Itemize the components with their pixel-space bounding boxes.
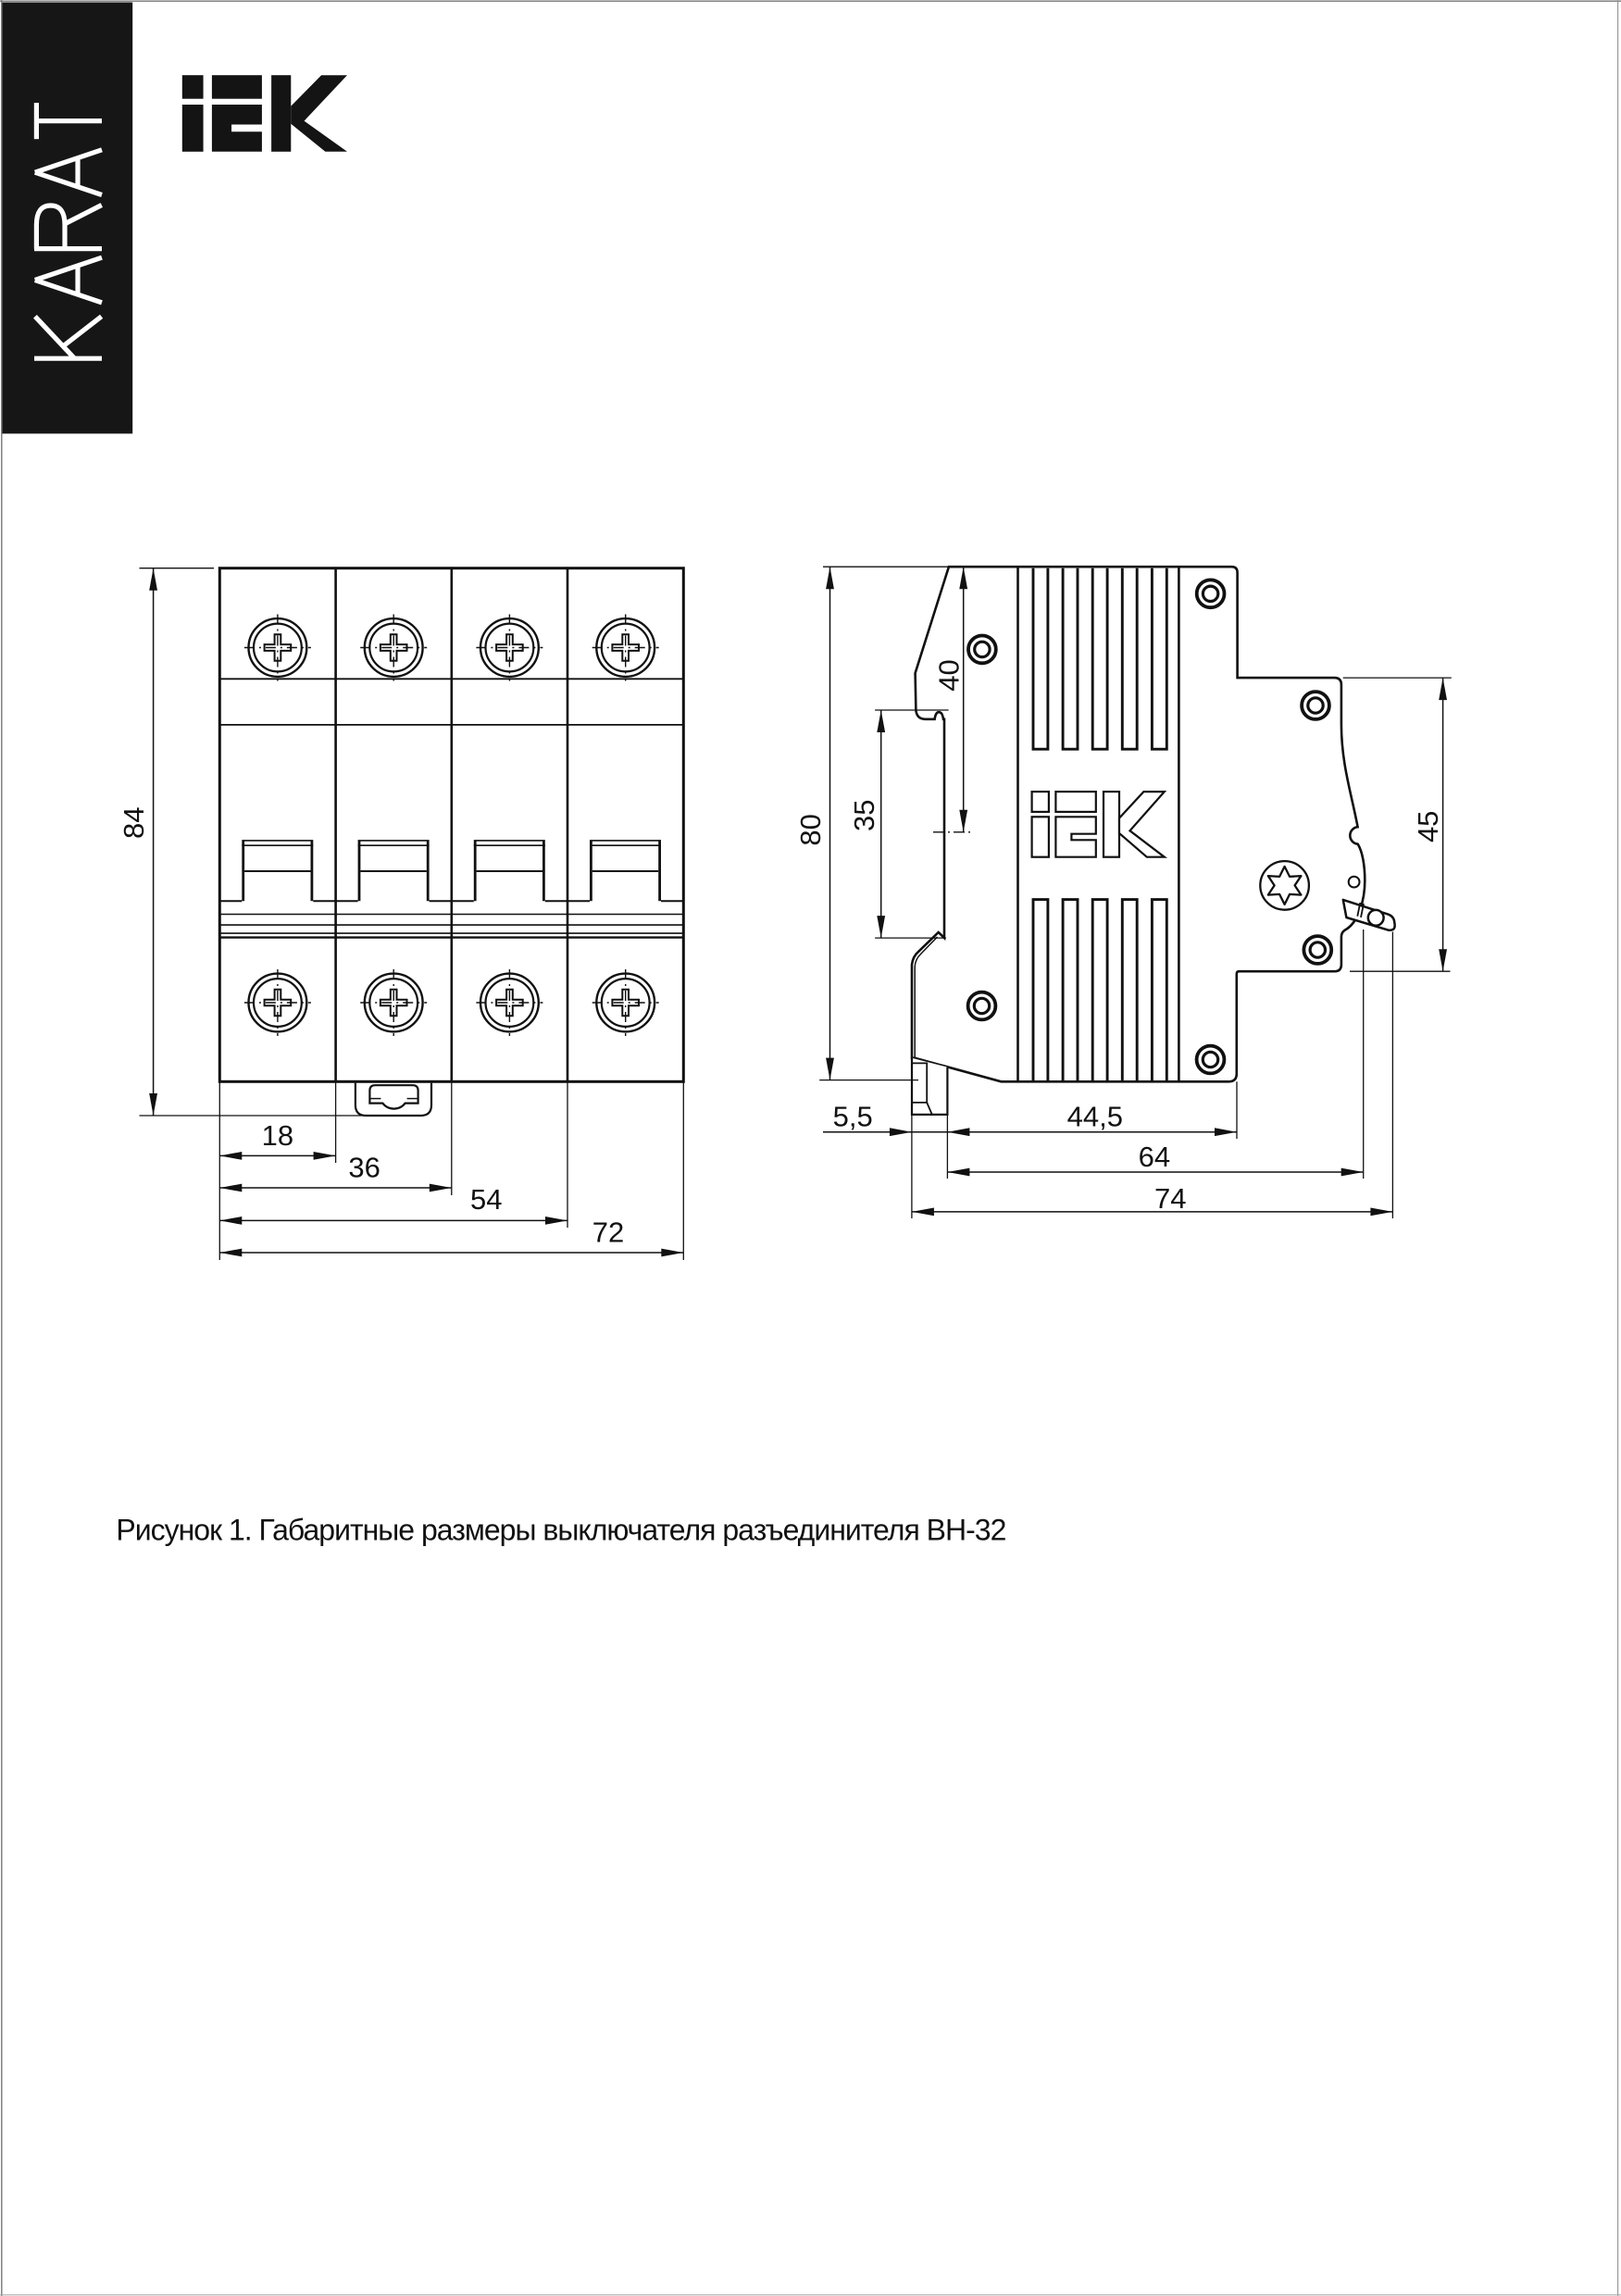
svg-text:Рисунок 1. Габаритные размеры: Рисунок 1. Габаритные размеры выключател…: [116, 1513, 1005, 1546]
svg-text:5,5: 5,5: [833, 1100, 873, 1132]
svg-text:44,5: 44,5: [1067, 1100, 1123, 1132]
svg-text:72: 72: [592, 1217, 624, 1249]
svg-text:40: 40: [933, 659, 966, 691]
svg-text:45: 45: [1412, 811, 1444, 842]
svg-text:80: 80: [794, 814, 827, 845]
svg-text:84: 84: [118, 807, 150, 839]
svg-text:74: 74: [1154, 1182, 1186, 1215]
svg-text:18: 18: [262, 1119, 293, 1152]
svg-text:36: 36: [348, 1152, 380, 1184]
svg-text:54: 54: [470, 1183, 502, 1216]
svg-text:64: 64: [1139, 1141, 1170, 1173]
svg-text:35: 35: [848, 800, 880, 831]
